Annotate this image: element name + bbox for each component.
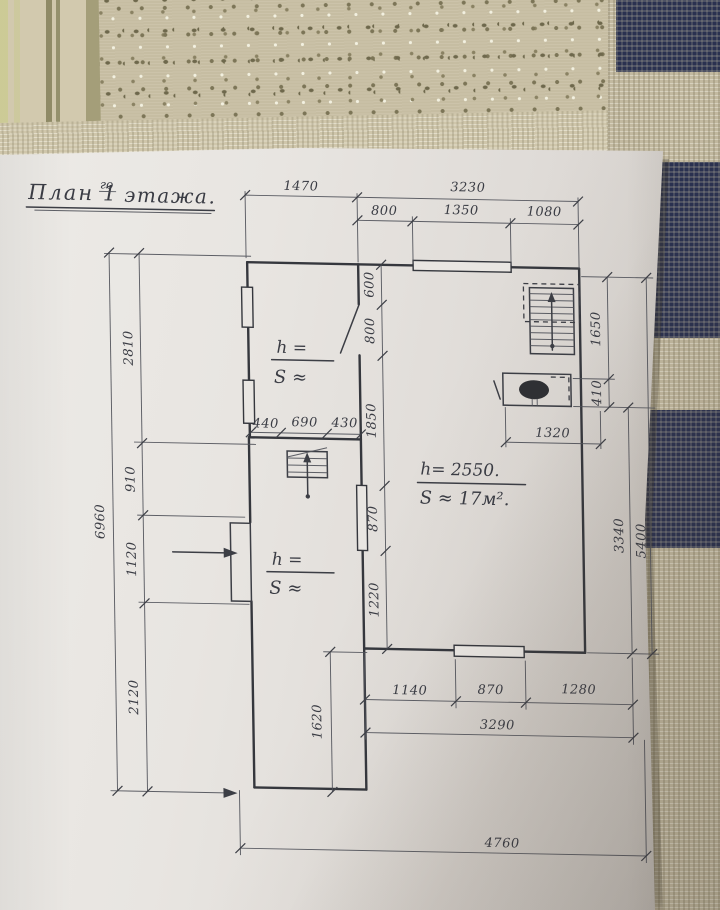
dim-label: 3340 [612,518,628,553]
dim-label: 870 [366,505,381,532]
dim-label: 1620 [310,704,326,739]
dim-label: 910 [123,466,138,493]
dim-label: 3230 [450,180,485,196]
photo-of-floor-plan: План 1 го этажа. [0,0,720,910]
dim-label: 2120 [127,679,143,715]
dimension-labels: 1470 3230 800 1350 1080 2810 910 1120 21… [88,173,654,854]
entrance-arrow [173,547,238,558]
room-height-label: h = [272,550,303,571]
dim-label: 1220 [367,582,383,617]
dim-label: 800 [363,317,378,344]
dim-label: 430 [330,416,358,432]
dim-label: 1280 [561,682,596,698]
dim-label: 1320 [535,426,570,442]
dim-label: 4760 [484,836,520,852]
dim-label: 1650 [589,311,605,346]
fraction-bar [272,360,334,361]
title-superscript: го [100,177,114,191]
room-height-label: h = [276,338,307,359]
room-height-label: h= 2550. [420,460,500,482]
room-area-label: S ≈ [269,578,302,600]
plan-title: План 1 го этажа. [26,176,217,214]
room-annotations: h= 2550. S ≈ 17м². h = S ≈ h = S ≈ [263,338,527,604]
fraction-bar [267,572,334,573]
dim-label: 600 [362,271,377,298]
entrance-door-leaf [230,523,251,601]
window-left-1 [242,287,254,327]
dim-label: 3290 [480,718,515,734]
dim-terminator-arrow [223,788,237,798]
fraction-bar [418,483,526,485]
dim-label: 800 [371,204,398,220]
stove-icon [494,373,571,406]
dim-label: 1850 [364,403,380,438]
title-text-2: этажа. [124,183,216,209]
dim-label: 1120 [125,541,141,576]
window-bottom [454,645,524,657]
dim-label: 410 [590,380,605,408]
dim-label: 1350 [444,203,479,219]
dim-label: 5400 [634,523,650,558]
dim-label: 1080 [527,205,562,221]
dim-label: 440 [251,416,279,432]
staircase-icon [523,284,580,355]
small-steps-icon [287,447,328,499]
floor-plan-drawing: План 1 го этажа. [0,0,720,910]
stove-dashed-detail [551,377,569,403]
room-area-label: S ≈ [274,367,307,389]
dim-label: 690 [291,415,318,431]
dim-label: 1140 [392,683,427,699]
dim-label: 870 [477,683,504,699]
room-area-label: S ≈ 17м². [420,488,510,511]
door-swing [340,305,360,353]
dim-label: 6960 [93,504,109,539]
dim-label: 1470 [283,179,318,195]
window-top [413,260,511,272]
dim-label: 2810 [121,330,137,366]
